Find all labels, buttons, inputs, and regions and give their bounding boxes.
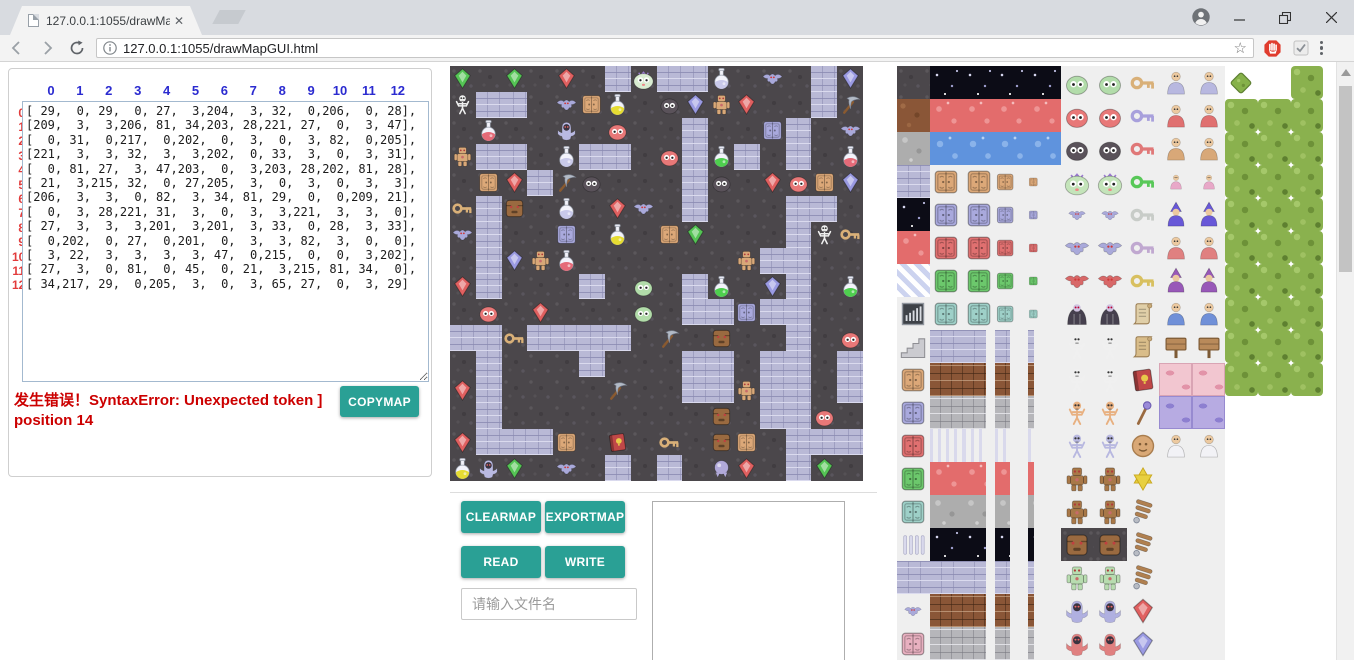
map-tile[interactable] [682,299,708,325]
tileset-tile[interactable] [1159,297,1192,330]
map-tile[interactable] [708,377,734,403]
map-tile[interactable] [760,170,786,196]
tileset-tile[interactable] [1028,495,1061,528]
info-icon[interactable] [103,41,117,55]
map-tile[interactable] [450,144,476,170]
tileset-tile[interactable] [1225,297,1258,330]
map-tile[interactable] [450,196,476,222]
tileset-tile[interactable] [963,165,996,198]
map-tile[interactable] [527,222,553,248]
map-tile[interactable] [708,274,734,300]
tileset-tile[interactable] [1159,231,1192,264]
tileset-tile[interactable] [1127,132,1160,165]
tileset-tile[interactable] [930,66,963,99]
map-tile[interactable] [553,248,579,274]
tileset-tile[interactable] [1094,330,1127,363]
tileset-tile[interactable] [1127,66,1160,99]
map-tile[interactable] [708,325,734,351]
tileset-tile[interactable] [1192,66,1225,99]
map-tile[interactable] [786,403,812,429]
map-tile[interactable] [708,196,734,222]
tileset-tile[interactable] [995,330,1028,363]
map-tile[interactable] [657,274,683,300]
tileset-tile[interactable] [1159,561,1192,594]
tileset-tile[interactable] [897,363,930,396]
tileset-tile[interactable] [1225,165,1258,198]
map-tile[interactable] [631,170,657,196]
map-tile[interactable] [527,299,553,325]
tileset-tile[interactable] [1159,363,1192,396]
tileset-tile[interactable] [1291,528,1324,561]
tileset-tile[interactable] [1225,495,1258,528]
tileset-tile[interactable] [1291,66,1324,99]
map-tile[interactable] [631,248,657,274]
map-tile[interactable] [837,248,863,274]
minimize-button[interactable] [1216,3,1262,33]
map-tile[interactable] [502,377,528,403]
tileset-tile[interactable] [995,429,1028,462]
tileset-tile[interactable] [1094,429,1127,462]
tileset-tile[interactable] [1028,165,1061,198]
map-tile[interactable] [553,455,579,481]
browser-tab[interactable]: 127.0.0.1:1055/drawMa ✕ [10,6,202,35]
tileset-tile[interactable] [1291,264,1324,297]
tileset-tile[interactable] [1291,627,1324,660]
map-tile[interactable] [682,92,708,118]
map-tile[interactable] [708,66,734,92]
map-tile[interactable] [734,429,760,455]
tileset-tile[interactable] [1291,99,1324,132]
map-tile[interactable] [502,274,528,300]
tileset-tile[interactable] [897,66,930,99]
url-text[interactable]: 127.0.0.1:1055/drawMapGUI.html [123,41,1234,56]
map-tile[interactable] [786,66,812,92]
map-tile[interactable] [811,455,837,481]
tileset-tile[interactable] [897,99,930,132]
tileset-tile[interactable] [1094,297,1127,330]
tileset-tile[interactable] [1028,198,1061,231]
map-tile[interactable] [502,222,528,248]
tileset-tile[interactable] [930,561,963,594]
scrollbar-thumb[interactable] [1339,86,1352,272]
new-tab-button[interactable] [212,10,245,24]
tileset-tile[interactable] [1192,462,1225,495]
map-tile[interactable] [682,455,708,481]
tileset-tile[interactable] [897,594,930,627]
map-tile[interactable] [553,222,579,248]
map-tile[interactable] [631,144,657,170]
map-tile[interactable] [553,92,579,118]
map-tile[interactable] [553,144,579,170]
tileset-tile[interactable] [1192,363,1225,396]
map-tile[interactable] [527,403,553,429]
tileset-tile[interactable] [963,495,996,528]
tileset-tile[interactable] [1192,165,1225,198]
tileset-tile[interactable] [1159,396,1192,429]
tileset-tile[interactable] [1225,231,1258,264]
map-tile[interactable] [476,403,502,429]
map-tile[interactable] [605,377,631,403]
map-tile[interactable] [760,299,786,325]
map-tile[interactable] [811,92,837,118]
map-tile[interactable] [811,196,837,222]
tileset-tile[interactable] [897,198,930,231]
tileset-tile[interactable] [1225,528,1258,561]
map-tile[interactable] [657,144,683,170]
filename-input[interactable] [461,588,637,620]
map-tile[interactable] [786,222,812,248]
tileset-tile[interactable] [1258,528,1291,561]
tileset-tile[interactable] [963,429,996,462]
map-tile[interactable] [553,351,579,377]
map-tile[interactable] [476,144,502,170]
menu-icon[interactable] [1320,41,1323,56]
tileset-tile[interactable] [1192,627,1225,660]
tileset-tile[interactable] [1225,330,1258,363]
tileset-tile[interactable] [995,198,1028,231]
tileset-tile[interactable] [1061,330,1094,363]
tileset-tile[interactable] [1192,264,1225,297]
map-tile[interactable] [631,274,657,300]
map-tile[interactable] [734,118,760,144]
tileset-tile[interactable] [930,231,963,264]
clearmap-button[interactable]: CLEARMAP [461,501,541,533]
map-tile[interactable] [657,118,683,144]
tileset-tile[interactable] [1258,198,1291,231]
tileset-tile[interactable] [1094,528,1127,561]
tileset-tile[interactable] [930,99,963,132]
map-tile[interactable] [476,170,502,196]
tileset-tile[interactable] [1291,429,1324,462]
tileset-tile[interactable] [897,231,930,264]
tileset-tile[interactable] [1127,528,1160,561]
map-tile[interactable] [579,222,605,248]
map-tile[interactable] [450,299,476,325]
tileset-tile[interactable] [897,165,930,198]
tileset-tile[interactable] [1192,561,1225,594]
map-tile[interactable] [527,325,553,351]
map-tile[interactable] [579,170,605,196]
map-tile[interactable] [837,196,863,222]
map-tile[interactable] [837,299,863,325]
tileset-tile[interactable] [930,396,963,429]
map-tile[interactable] [708,351,734,377]
map-tile[interactable] [786,429,812,455]
tileset-tile[interactable] [963,264,996,297]
tileset-tile[interactable] [1192,528,1225,561]
map-tile[interactable] [450,429,476,455]
map-tile[interactable] [657,403,683,429]
map-tile[interactable] [682,222,708,248]
tileset-tile[interactable] [1159,264,1192,297]
map-tile[interactable] [631,66,657,92]
map-tile[interactable] [734,196,760,222]
tileset-tile[interactable] [930,528,963,561]
tileset-tile[interactable] [930,330,963,363]
tileset-tile[interactable] [1258,561,1291,594]
map-tile[interactable] [631,196,657,222]
profile-icon[interactable] [1188,4,1214,30]
map-tile[interactable] [579,325,605,351]
map-tile[interactable] [450,118,476,144]
map-tile[interactable] [837,274,863,300]
tileset-tile[interactable] [963,231,996,264]
tileset-tile[interactable] [995,561,1028,594]
tileset-tile[interactable] [995,396,1028,429]
map-tile[interactable] [811,170,837,196]
map-tile[interactable] [527,455,553,481]
tileset-tile[interactable] [1127,429,1160,462]
matrix-textarea[interactable] [22,101,429,382]
map-tile[interactable] [811,144,837,170]
tileset-tile[interactable] [1028,99,1061,132]
map-tile[interactable] [502,325,528,351]
map-tile[interactable] [631,118,657,144]
map-tile[interactable] [605,455,631,481]
map-tile[interactable] [708,429,734,455]
map-tile[interactable] [579,299,605,325]
tileset-tile[interactable] [1225,462,1258,495]
map-tile[interactable] [450,248,476,274]
tileset-tile[interactable] [1061,99,1094,132]
tileset-tile[interactable] [995,264,1028,297]
tileset-tile[interactable] [1127,594,1160,627]
tileset-tile[interactable] [897,330,930,363]
tileset-tile[interactable] [1061,231,1094,264]
map-tile[interactable] [734,144,760,170]
tileset-tile[interactable] [897,528,930,561]
tileset-tile[interactable] [995,462,1028,495]
map-tile[interactable] [605,403,631,429]
tileset-tile[interactable] [1258,264,1291,297]
page-scrollbar[interactable] [1336,62,1354,660]
map-tile[interactable] [708,170,734,196]
map-tile[interactable] [631,429,657,455]
tileset-tile[interactable] [1258,99,1291,132]
map-tile[interactable] [553,325,579,351]
tileset-tile[interactable] [1028,627,1061,660]
map-tile[interactable] [502,170,528,196]
tileset-tile[interactable] [1028,363,1061,396]
tileset-tile[interactable] [930,165,963,198]
map-tile[interactable] [631,403,657,429]
map-tile[interactable] [605,144,631,170]
tileset-tile[interactable] [930,198,963,231]
map-tile[interactable] [811,429,837,455]
tileset-tile[interactable] [1192,594,1225,627]
map-tile[interactable] [502,455,528,481]
map-tile[interactable] [450,274,476,300]
tileset-tile[interactable] [1291,561,1324,594]
map-tile[interactable] [579,274,605,300]
map-tile[interactable] [450,170,476,196]
map-tile[interactable] [786,377,812,403]
map-tile[interactable] [760,222,786,248]
map-tile[interactable] [657,299,683,325]
tileset-tile[interactable] [1159,462,1192,495]
tileset-tile[interactable] [1028,429,1061,462]
map-tile[interactable] [760,196,786,222]
map-tile[interactable] [837,118,863,144]
map-tile[interactable] [786,118,812,144]
map-tile[interactable] [605,429,631,455]
map-tile[interactable] [450,403,476,429]
map-tile[interactable] [786,92,812,118]
map-tile[interactable] [605,274,631,300]
tileset-tile[interactable] [1225,594,1258,627]
tileset-tile[interactable] [1127,264,1160,297]
map-tile[interactable] [657,377,683,403]
tileset-tile[interactable] [1127,363,1160,396]
tileset-tile[interactable] [930,594,963,627]
map-tile[interactable] [527,92,553,118]
tileset-tile[interactable] [963,528,996,561]
tileset-tile[interactable] [1061,297,1094,330]
map-tile[interactable] [502,351,528,377]
map-tile[interactable] [811,299,837,325]
tileset-tile[interactable] [930,297,963,330]
tileset-tile[interactable] [1258,627,1291,660]
map-tile[interactable] [605,170,631,196]
tileset-tile[interactable] [963,561,996,594]
map-tile[interactable] [837,403,863,429]
tileset-tile[interactable] [1291,132,1324,165]
tileset-tile[interactable] [1028,561,1061,594]
map-tile[interactable] [579,92,605,118]
map-tile[interactable] [579,118,605,144]
tileset-tile[interactable] [897,297,930,330]
map-tile[interactable] [631,222,657,248]
tileset-tile[interactable] [995,231,1028,264]
tileset-tile[interactable] [1159,495,1192,528]
tileset-tile[interactable] [1225,66,1258,99]
tileset-tile[interactable] [963,363,996,396]
tileset-tile[interactable] [1291,198,1324,231]
tileset-tile[interactable] [1094,462,1127,495]
tileset-tile[interactable] [1159,330,1192,363]
tileset-tile[interactable] [995,297,1028,330]
tileset-tile[interactable] [1028,396,1061,429]
tileset-tile[interactable] [1192,297,1225,330]
map-tile[interactable] [734,325,760,351]
map-tile[interactable] [786,455,812,481]
tileset-tile[interactable] [1159,627,1192,660]
tileset-tile[interactable] [1159,165,1192,198]
map-tile[interactable] [476,92,502,118]
map-tile[interactable] [708,299,734,325]
tileset-tile[interactable] [1127,198,1160,231]
tileset-tile[interactable] [963,66,996,99]
tileset-tile[interactable] [1225,198,1258,231]
tileset-tile[interactable] [1159,594,1192,627]
tileset-tile[interactable] [1291,363,1324,396]
map-tile[interactable] [657,351,683,377]
map-tile[interactable] [682,377,708,403]
tileset-tile[interactable] [1159,99,1192,132]
map-tile[interactable] [579,66,605,92]
map-tile[interactable] [579,403,605,429]
map-tile[interactable] [786,196,812,222]
tileset-tile[interactable] [1094,594,1127,627]
tileset-tile[interactable] [1061,264,1094,297]
map-tile[interactable] [631,325,657,351]
tileset-tile[interactable] [1225,132,1258,165]
map-tile[interactable] [760,144,786,170]
tileset-tile[interactable] [1225,363,1258,396]
read-button[interactable]: READ [461,546,541,578]
tileset-tile[interactable] [1127,165,1160,198]
map-canvas[interactable] [450,66,863,481]
map-tile[interactable] [605,92,631,118]
map-tile[interactable] [450,351,476,377]
tileset-tile[interactable] [995,495,1028,528]
map-tile[interactable] [657,325,683,351]
map-tile[interactable] [682,144,708,170]
tileset-tile[interactable] [1028,462,1061,495]
map-tile[interactable] [811,325,837,351]
map-tile[interactable] [682,429,708,455]
map-tile[interactable] [734,455,760,481]
tileset-tile[interactable] [1061,198,1094,231]
map-tile[interactable] [450,92,476,118]
tileset-tile[interactable] [1061,462,1094,495]
map-tile[interactable] [786,274,812,300]
tileset-tile[interactable] [995,594,1028,627]
map-tile[interactable] [811,222,837,248]
map-tile[interactable] [682,118,708,144]
map-tile[interactable] [682,351,708,377]
map-tile[interactable] [760,118,786,144]
tileset-tile[interactable] [1028,264,1061,297]
map-tile[interactable] [786,170,812,196]
tileset-tile[interactable] [1061,429,1094,462]
map-tile[interactable] [502,429,528,455]
map-tile[interactable] [527,248,553,274]
map-tile[interactable] [476,429,502,455]
tileset-tile[interactable] [1094,132,1127,165]
tileset-tile[interactable] [1094,363,1127,396]
tileset-tile[interactable] [1061,594,1094,627]
tileset-tile[interactable] [930,264,963,297]
map-tile[interactable] [631,377,657,403]
back-button[interactable] [4,37,30,59]
map-tile[interactable] [553,403,579,429]
map-tile[interactable] [837,325,863,351]
map-tile[interactable] [657,429,683,455]
tileset-tile[interactable] [995,528,1028,561]
map-tile[interactable] [837,429,863,455]
map-tile[interactable] [760,248,786,274]
map-tile[interactable] [553,196,579,222]
tileset-tile[interactable] [1028,594,1061,627]
tileset-tile[interactable] [1094,495,1127,528]
bookmark-star-icon[interactable]: ☆ [1234,41,1247,56]
tileset-tile[interactable] [1192,99,1225,132]
map-tile[interactable] [450,66,476,92]
map-tile[interactable] [657,170,683,196]
map-tile[interactable] [708,455,734,481]
map-tile[interactable] [734,274,760,300]
map-tile[interactable] [811,403,837,429]
map-tile[interactable] [631,299,657,325]
tileset-tile[interactable] [1028,66,1061,99]
map-tile[interactable] [502,92,528,118]
reload-button[interactable] [64,37,90,59]
map-tile[interactable] [708,144,734,170]
map-tile[interactable] [837,455,863,481]
tileset-tile[interactable] [1094,231,1127,264]
map-tile[interactable] [631,351,657,377]
